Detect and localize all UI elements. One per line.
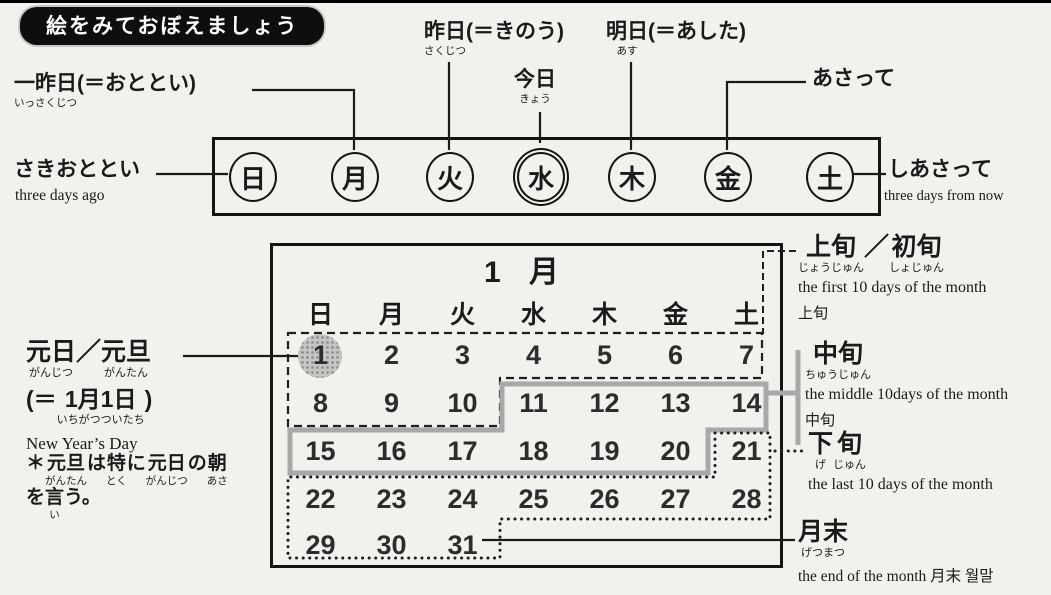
annotation-ganjitsu-en: New Year’s Day: [26, 434, 152, 454]
label-asu: 明日あす(＝あした): [606, 20, 746, 56]
annotation-getsumatsu-term: 月末げつまつ: [798, 518, 994, 559]
label-shiasatte-en: three days from now: [884, 188, 1004, 205]
ruby-segment: う。: [64, 487, 101, 508]
ruby-segment: 特とく: [106, 453, 127, 487]
calendar-weekday-header: 火: [427, 295, 498, 331]
annotation-ganjitsu-term: 元日がんじつ／元旦がんたん: [26, 338, 152, 379]
calendar-date: 19: [569, 427, 640, 475]
ruby-segment: 元旦がんたん: [45, 453, 87, 487]
annotation-ganjitsu: 元日がんじつ／元旦がんたん (＝1月1日いちがつついたち) New Year’s…: [26, 338, 152, 454]
week-day-circle: 火: [426, 152, 474, 202]
label-shiasatte: しあさって: [888, 153, 992, 183]
annotation-chuujun-term: 中旬ちゅうじゅん: [805, 340, 1008, 381]
ruby-segment: の: [188, 453, 207, 474]
label-issakujitsu: 一昨日いっさくじつ(＝おととい): [14, 72, 196, 108]
ruby-segment: 元旦がんたん: [101, 338, 151, 379]
calendar-date: 14: [711, 379, 782, 427]
week-day-circle: 月: [331, 152, 379, 202]
calendar-weekday-header: 金: [640, 295, 711, 331]
calendar-grid: 日月火水木金土123456789101112131415161718192021…: [285, 295, 782, 567]
calendar-date: 24: [427, 475, 498, 523]
calendar-weekday-header: 日: [285, 295, 356, 331]
calendar-date: 5: [569, 331, 640, 379]
page-top-edge: [0, 0, 1051, 3]
week-day-circle: 金: [704, 152, 752, 202]
calendar-date: 4: [498, 331, 569, 379]
calendar-month-title: 1 月: [270, 247, 783, 291]
annotation-chuujun-translation: 中旬: [805, 409, 1008, 430]
ruby-segment: 元日がんじつ: [26, 338, 76, 379]
annotation-joujun-translation: 上旬: [798, 302, 986, 323]
label-asatte: あさって: [812, 62, 895, 92]
calendar-date: 20: [640, 427, 711, 475]
annotation-getsumatsu-en: the end of the month 月末 월말: [798, 564, 994, 586]
ruby-segment: 今日きょう: [514, 68, 556, 104]
annotation-joujun-en: the first 10 days of the month: [798, 279, 986, 297]
calendar-date: 11: [498, 379, 569, 427]
calendar-date: 31: [427, 523, 498, 567]
calendar-date: 25: [498, 475, 569, 523]
ruby-segment: (＝きのう): [466, 20, 564, 44]
calendar-date: 2: [356, 331, 427, 379]
calendar-date: 7: [711, 331, 782, 379]
ruby-segment: 旬じゅん: [833, 430, 866, 471]
ruby-segment: 下げ: [808, 430, 833, 471]
calendar-weekday-header: 水: [498, 295, 569, 331]
ruby-segment: 1月1日いちがつついたち: [57, 387, 145, 426]
calendar-date: 27: [640, 475, 711, 523]
calendar-date: 13: [640, 379, 711, 427]
ruby-segment: 昨日さくじつ: [424, 20, 466, 56]
calendar-date: 6: [640, 331, 711, 379]
ruby-segment: 言い: [45, 487, 64, 521]
ruby-segment: 元日がんじつ: [146, 453, 188, 487]
ruby-segment: (＝: [26, 387, 57, 413]
week-day-circle-today: 水: [517, 152, 565, 202]
annotation-getsumatsu: 月末げつまつ the end of the month 月末 월말: [798, 518, 994, 586]
calendar-date: 23: [356, 475, 427, 523]
label-sakiototoi-en: three days ago: [15, 187, 105, 205]
week-day-circle: 土: [806, 152, 854, 202]
label-sakujitsu: 昨日さくじつ(＝きのう): [424, 20, 564, 56]
annotation-gejun: 下げ旬じゅん the last 10 days of the month: [808, 430, 993, 494]
ruby-segment: に: [127, 453, 146, 474]
annotation-joujun-term: 上旬じょうじゅん／初旬しょじゅん: [798, 233, 986, 274]
ruby-segment: を: [26, 487, 45, 508]
calendar-date: 18: [498, 427, 569, 475]
calendar-date: 22: [285, 475, 356, 523]
calendar-date: 29: [285, 523, 356, 567]
calendar-date: 3: [427, 331, 498, 379]
annotation-gejun-term: 下げ旬じゅん: [808, 430, 993, 471]
calendar-date: 30: [356, 523, 427, 567]
annotation-joujun: 上旬じょうじゅん／初旬しょじゅん the first 10 days of th…: [798, 233, 986, 323]
annotation-chuujun: 中旬ちゅうじゅん the middle 10days of the month …: [805, 340, 1008, 430]
week-day-circle: 日: [229, 152, 277, 202]
ruby-segment: 明日あす: [606, 20, 648, 56]
section-title-badge: 絵をみておぼえましょう: [20, 7, 324, 45]
ruby-segment: (＝おととい): [77, 72, 196, 96]
section-title: 絵をみておぼえましょう: [46, 15, 298, 38]
annotation-chuujun-en: the middle 10days of the month: [805, 386, 1008, 404]
label-kyou: 今日きょう: [514, 68, 556, 104]
calendar-date: 16: [356, 427, 427, 475]
ruby-segment: 中旬ちゅうじゅん: [805, 340, 871, 381]
calendar-date: 12: [569, 379, 640, 427]
calendar-date: 9: [356, 379, 427, 427]
calendar-date: 26: [569, 475, 640, 523]
ruby-segment: 月末げつまつ: [798, 518, 848, 559]
calendar-date: 15: [285, 427, 356, 475]
annotation-ganjitsu-note: ＊元旦がんたんは特とくに元日がんじつの朝あさを言いう。: [26, 453, 282, 521]
ruby-segment: ＊: [26, 453, 45, 474]
ruby-segment: ／: [864, 233, 889, 261]
ruby-segment: 一昨日いっさくじつ: [14, 72, 77, 108]
calendar-weekday-header: 木: [569, 295, 640, 331]
calendar-date: 10: [427, 379, 498, 427]
calendar-weekday-header: 土: [711, 295, 782, 331]
ruby-segment: 初旬しょじゅん: [889, 233, 944, 274]
calendar-weekday-header: 月: [356, 295, 427, 331]
annotation-ganjitsu-equiv: (＝1月1日いちがつついたち): [26, 387, 152, 426]
ruby-segment: ): [145, 387, 153, 413]
ruby-segment: ／: [76, 338, 101, 366]
week-day-circle: 木: [608, 152, 656, 202]
calendar-date: 17: [427, 427, 498, 475]
ruby-segment: は: [87, 453, 106, 474]
calendar-date: 21: [711, 427, 782, 475]
calendar-date-highlighted: 1: [285, 331, 356, 379]
calendar-date: 8: [285, 379, 356, 427]
annotation-gejun-en: the last 10 days of the month: [808, 476, 993, 494]
label-sakiototoi: さきおととい: [14, 153, 140, 183]
ruby-segment: 朝あさ: [207, 453, 228, 487]
calendar-date: 28: [711, 475, 782, 523]
ruby-segment: 上旬じょうじゅん: [798, 233, 864, 274]
ruby-segment: (＝あした): [648, 20, 746, 44]
